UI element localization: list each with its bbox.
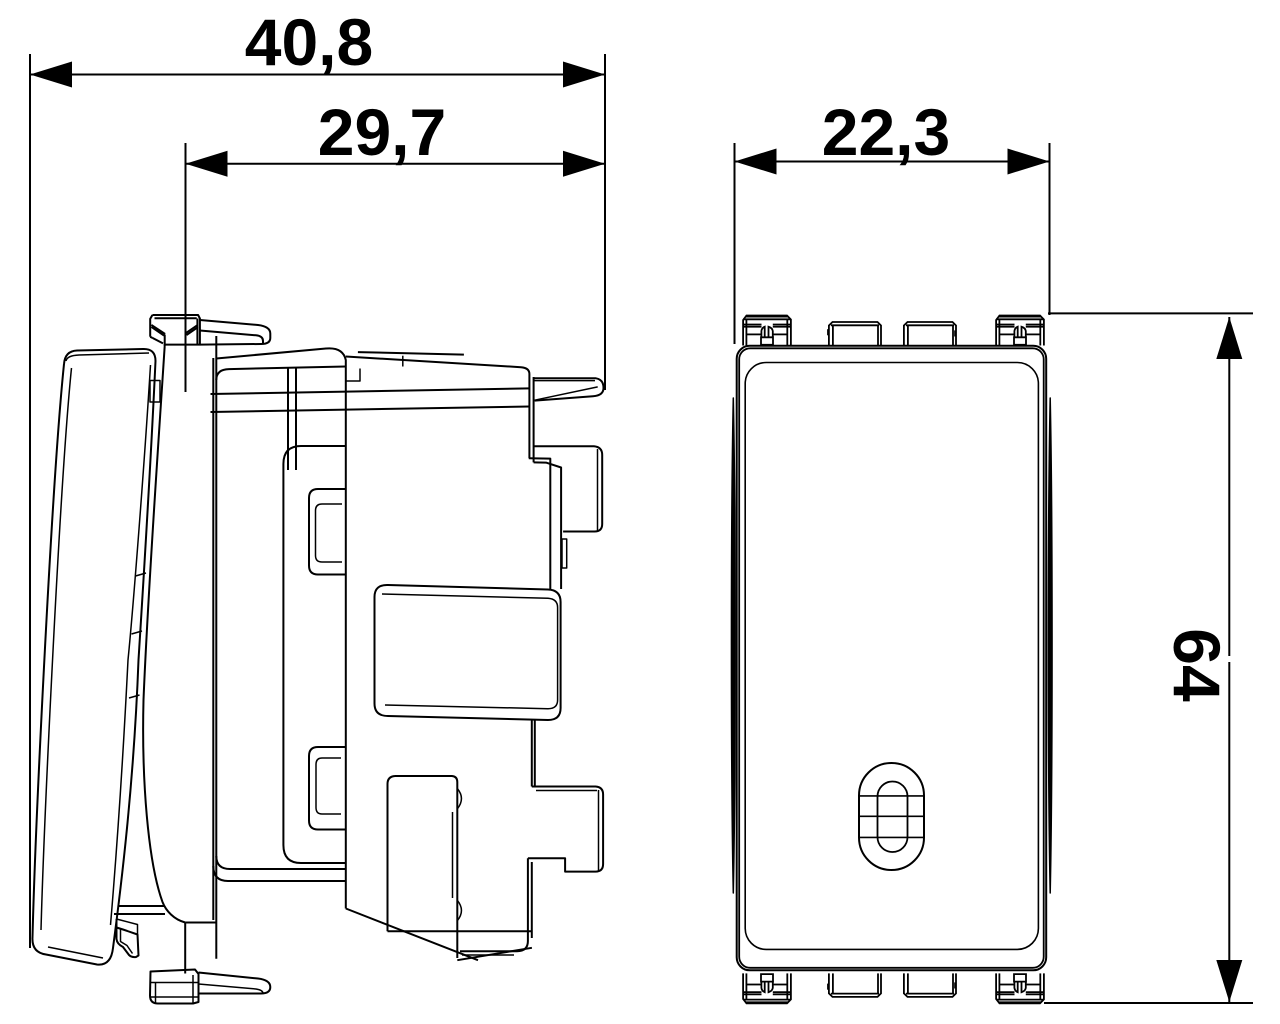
svg-text:64: 64 [1160, 628, 1234, 702]
svg-text:40,8: 40,8 [245, 5, 373, 79]
svg-text:29,7: 29,7 [318, 95, 446, 169]
svg-text:22,3: 22,3 [822, 95, 950, 169]
